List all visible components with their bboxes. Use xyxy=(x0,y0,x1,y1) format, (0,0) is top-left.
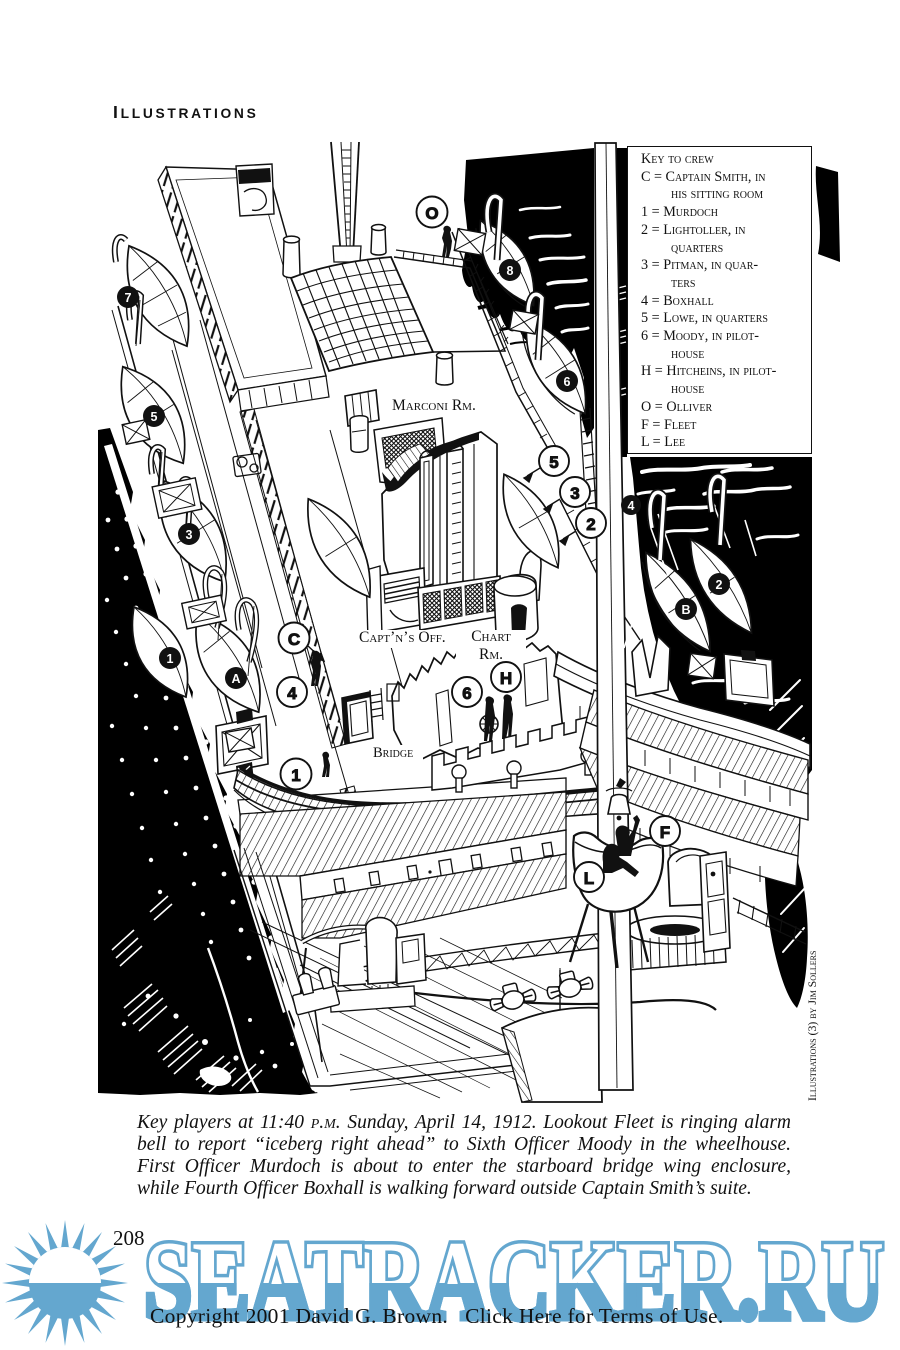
svg-text:F: F xyxy=(660,823,670,842)
svg-text:7: 7 xyxy=(125,291,132,305)
svg-text:B: B xyxy=(681,603,690,617)
svg-text:A: A xyxy=(231,672,240,686)
svg-text:4: 4 xyxy=(287,684,297,703)
svg-text:5: 5 xyxy=(549,453,558,472)
svg-text:3: 3 xyxy=(570,484,579,503)
svg-text:L: L xyxy=(584,869,594,888)
svg-text:3: 3 xyxy=(186,528,193,542)
svg-text:6: 6 xyxy=(564,375,571,389)
svg-text:2: 2 xyxy=(716,578,723,592)
svg-text:1: 1 xyxy=(167,652,174,666)
svg-text:4: 4 xyxy=(628,499,635,513)
svg-text:2: 2 xyxy=(586,515,595,534)
svg-text:1: 1 xyxy=(291,766,300,785)
svg-text:Copyright 2001 David G. Brown.: Copyright 2001 David G. Brown. Click Her… xyxy=(150,1304,724,1328)
svg-text:5: 5 xyxy=(151,410,158,424)
svg-text:H: H xyxy=(500,669,512,688)
svg-text:8: 8 xyxy=(507,264,514,278)
svg-text:6: 6 xyxy=(462,684,471,703)
svg-text:O: O xyxy=(425,204,438,223)
svg-text:C: C xyxy=(288,630,300,649)
